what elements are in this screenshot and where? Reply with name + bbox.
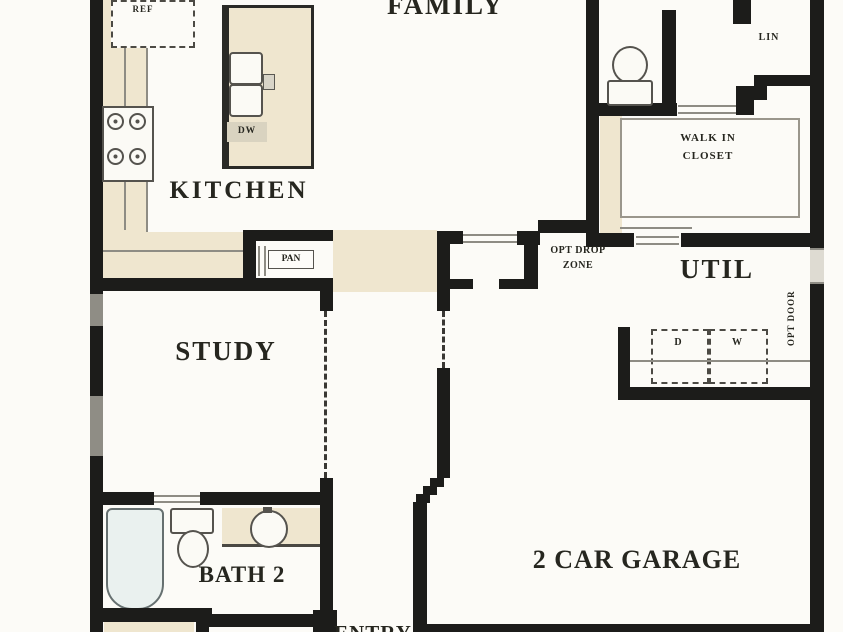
wall-family-divider xyxy=(586,0,599,245)
door-right-exterior xyxy=(810,248,824,284)
door-threshold xyxy=(678,105,736,107)
wall-stub-top xyxy=(733,0,751,24)
wall-closet-bottom xyxy=(681,233,810,247)
burner-icon xyxy=(129,113,146,130)
opening-hall xyxy=(442,311,445,368)
window-left xyxy=(90,294,103,326)
room-label-walk-in-closet: WALK IN CLOSET xyxy=(662,130,754,165)
door-threshold xyxy=(154,495,200,497)
door-threshold xyxy=(258,246,260,276)
door-threshold xyxy=(678,112,736,114)
bathtub xyxy=(106,508,164,610)
kitchen-counter-bottom xyxy=(103,232,243,278)
wall-util-left xyxy=(618,327,630,389)
wall-right-exterior xyxy=(810,0,824,632)
wall-bottom xyxy=(90,608,212,622)
room-label-bath2: BATH 2 xyxy=(190,562,294,588)
wall-study-east xyxy=(320,278,333,311)
room-label-util: UTIL xyxy=(674,254,760,285)
door-threshold xyxy=(636,243,679,245)
label-pantry: PAN xyxy=(268,250,314,269)
toilet-bowl xyxy=(612,46,648,84)
drop-zone-line1: OPT DROP xyxy=(536,243,620,258)
window-left xyxy=(90,396,103,456)
wall-bottom-jog xyxy=(196,608,209,632)
label-washer: W xyxy=(729,337,745,348)
walk-in-line2: CLOSET xyxy=(662,148,754,166)
door-threshold xyxy=(463,241,517,243)
counter-edge xyxy=(103,250,243,252)
label-dryer: D xyxy=(670,337,686,348)
door-threshold xyxy=(264,246,266,276)
faucet-icon xyxy=(263,507,272,513)
burner-icon xyxy=(129,148,146,165)
kitchen-walkway-floor xyxy=(333,230,437,292)
bath-sink xyxy=(250,510,288,548)
toilet-tank xyxy=(607,80,653,106)
closet-shelf-line xyxy=(620,227,692,229)
room-label-entry: ENTRY xyxy=(330,621,416,632)
door-line xyxy=(810,248,824,250)
floor-plan: FAMILY KITCHEN STUDY BATH 2 UTIL 2 CAR G… xyxy=(0,0,843,632)
wall-hall-east xyxy=(437,368,450,478)
appliance-counter-line xyxy=(630,360,810,362)
wall-linen-bottom xyxy=(754,75,812,86)
wall-closet-pillar xyxy=(736,86,754,115)
closet-corridor-floor xyxy=(600,115,622,245)
faucet-icon xyxy=(263,74,275,90)
room-label-family: FAMILY xyxy=(378,0,513,21)
label-dishwasher: DW xyxy=(227,126,267,136)
sink-basin xyxy=(229,52,263,85)
wall-bath-top xyxy=(200,492,333,505)
porch-strip xyxy=(104,622,194,632)
drop-zone-line2: ZONE xyxy=(536,258,620,273)
door-threshold xyxy=(154,501,200,503)
wall-pantry-top xyxy=(256,230,333,241)
room-label-study: STUDY xyxy=(166,336,286,367)
wall-powder-right xyxy=(662,10,676,116)
label-linen: LIN xyxy=(750,32,788,43)
room-label-garage: 2 CAR GARAGE xyxy=(512,545,762,575)
door-threshold xyxy=(636,236,679,238)
wall-study-top xyxy=(90,278,243,291)
wall-bath-top xyxy=(90,492,154,505)
burner-icon xyxy=(107,148,124,165)
wall-util-bottom xyxy=(618,387,810,400)
opening-study xyxy=(324,311,327,478)
wall-family-bottom xyxy=(538,220,599,233)
wall-garage-bottom xyxy=(427,624,810,632)
walk-in-line1: WALK IN xyxy=(662,130,754,148)
wall-linen-left xyxy=(754,86,767,100)
wall-entry-east xyxy=(413,502,427,632)
door-threshold xyxy=(463,234,517,236)
label-drop-zone: OPT DROP ZONE xyxy=(536,243,620,273)
room-label-kitchen: KITCHEN xyxy=(163,177,315,205)
wall-hall-east xyxy=(437,243,450,311)
burner-icon xyxy=(107,113,124,130)
wall-nook-lip xyxy=(499,279,538,289)
door-line xyxy=(810,282,824,284)
label-refrigerator: REF xyxy=(121,4,165,14)
sink-basin xyxy=(229,84,263,117)
label-opt-door: OPT DOOR xyxy=(786,272,802,364)
